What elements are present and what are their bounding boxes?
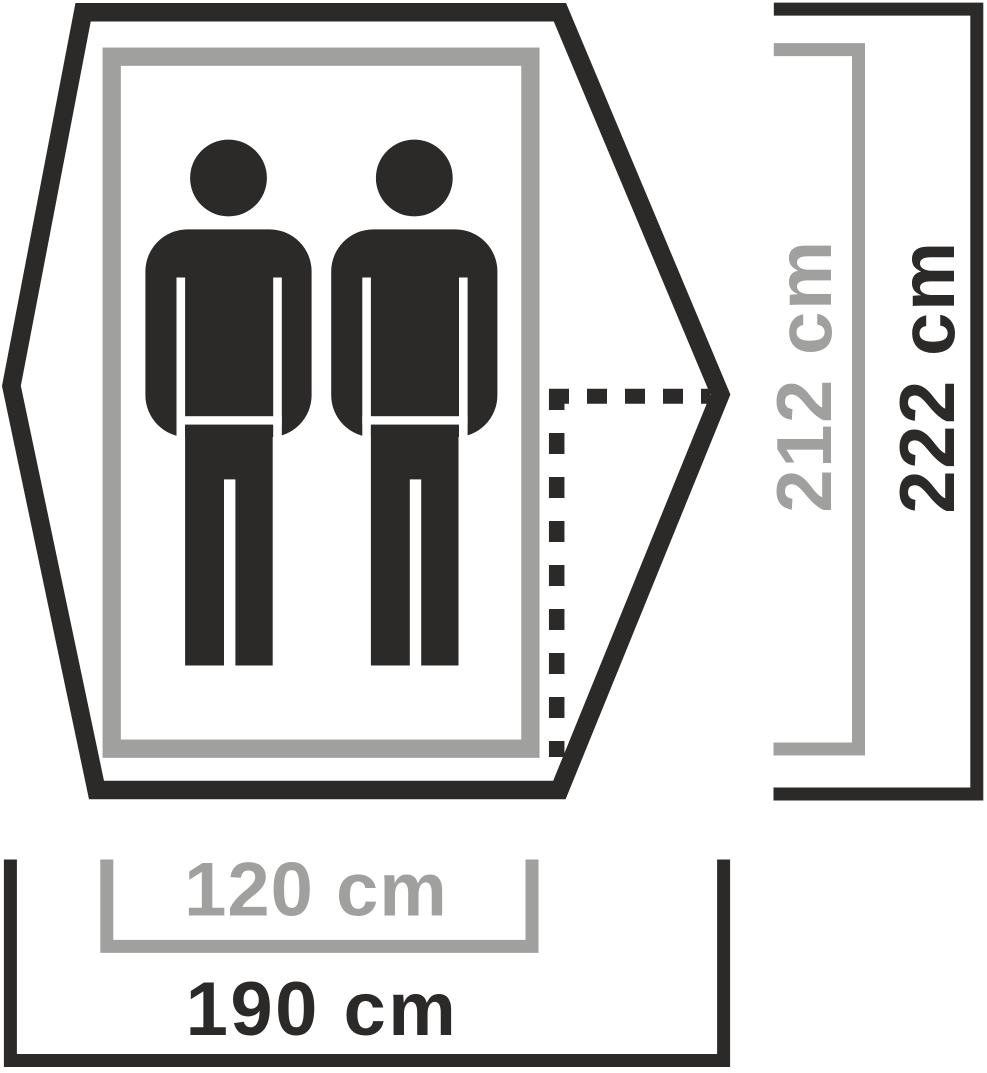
svg-text:190 cm: 190 cm (186, 967, 459, 1052)
svg-text:120 cm: 120 cm (184, 848, 448, 933)
svg-text:212 cm: 212 cm (760, 239, 848, 513)
svg-text:222 cm: 222 cm (883, 240, 971, 514)
